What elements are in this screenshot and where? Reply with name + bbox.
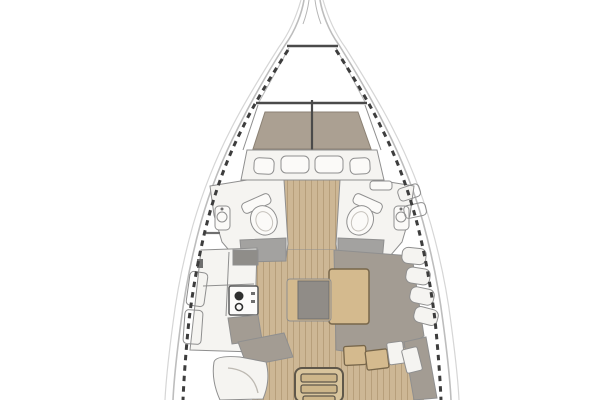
vberth-locker-1	[254, 157, 275, 174]
stove-burner-1	[235, 292, 244, 301]
ladder-rung-1	[301, 374, 337, 382]
center-bench-cushion	[298, 281, 329, 319]
starboard-sink-faucet	[400, 208, 403, 211]
salon-table	[329, 269, 369, 324]
vberth-locker-4	[350, 157, 371, 174]
sailboat-floorplan	[0, 0, 600, 400]
aft-step-1	[344, 345, 367, 365]
ladder-frame	[295, 368, 343, 400]
galley-stove	[229, 286, 258, 315]
stove-knob-2	[251, 300, 255, 303]
port-sink-faucet	[221, 208, 224, 211]
bow-locker-edge-port	[259, 48, 289, 102]
starboard-head-shelf	[370, 181, 392, 190]
floorplan-canvas	[0, 0, 600, 400]
stove-knob-1	[251, 292, 255, 295]
nav-station-seat	[213, 357, 268, 400]
ladder-rung-3	[303, 396, 335, 400]
center-bench	[287, 279, 331, 321]
v-berth-cabin	[241, 100, 384, 180]
port-sink	[215, 206, 230, 230]
ladder-rung-2	[301, 385, 337, 393]
vberth-locker-2	[281, 156, 309, 173]
backrest-cushion-1	[401, 247, 427, 265]
companionway-ladder	[295, 368, 343, 400]
aft-step-2	[365, 349, 389, 371]
vberth-locker-3	[315, 156, 343, 173]
galley-worktop-gray	[233, 250, 258, 265]
starboard-head	[336, 180, 414, 263]
